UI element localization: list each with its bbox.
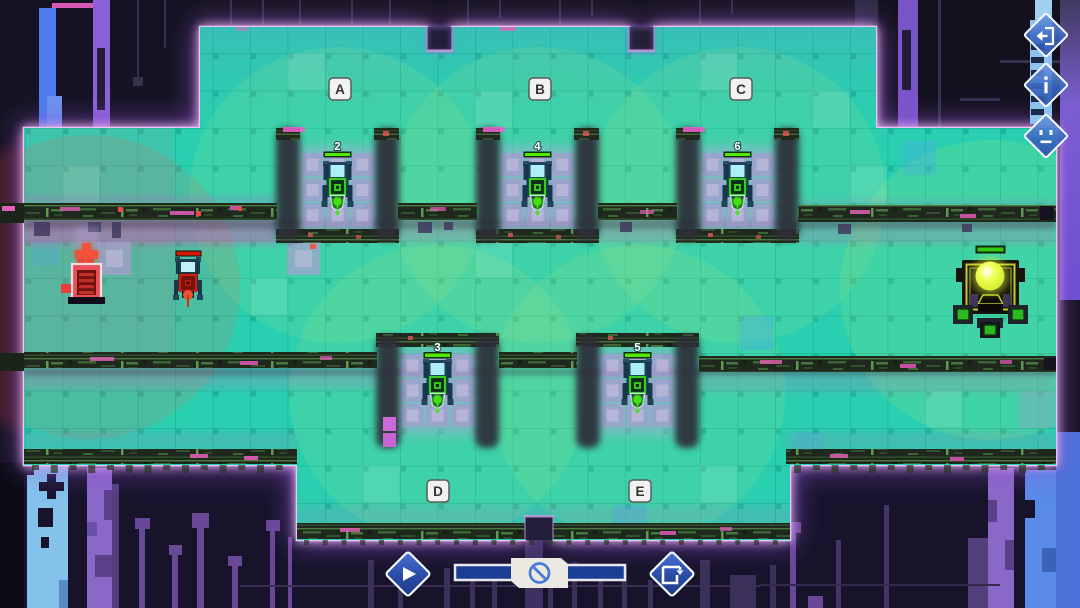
svg-text:B: B <box>535 82 545 97</box>
svg-text:D: D <box>433 484 443 499</box>
svg-text:C: C <box>736 82 746 97</box>
svg-text:A: A <box>335 82 345 97</box>
svg-text:E: E <box>635 484 644 499</box>
